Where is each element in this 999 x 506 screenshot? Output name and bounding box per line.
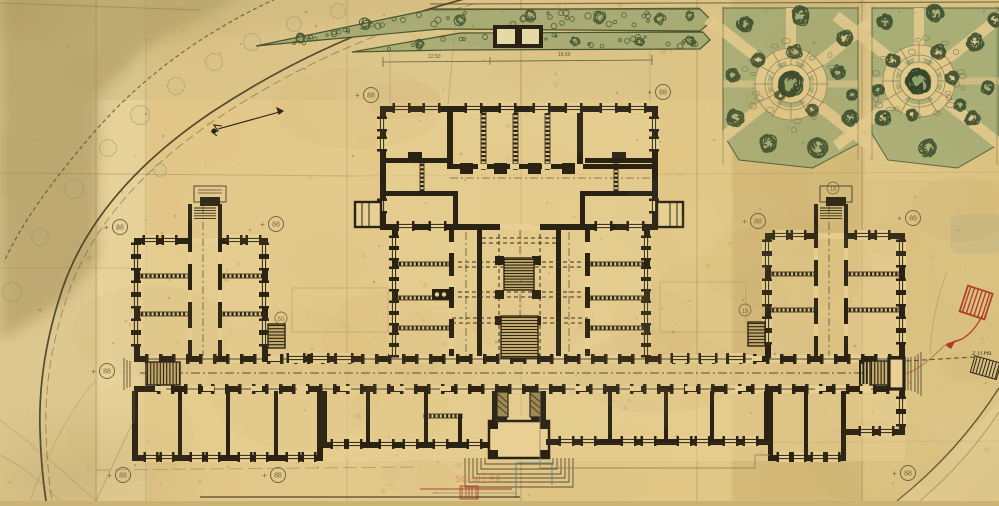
svg-text:+: +	[91, 367, 96, 376]
svg-text:+: +	[262, 471, 267, 480]
svg-text:18.50: 18.50	[558, 52, 571, 58]
svg-text:88: 88	[116, 225, 124, 232]
svg-text:+: +	[104, 223, 109, 232]
